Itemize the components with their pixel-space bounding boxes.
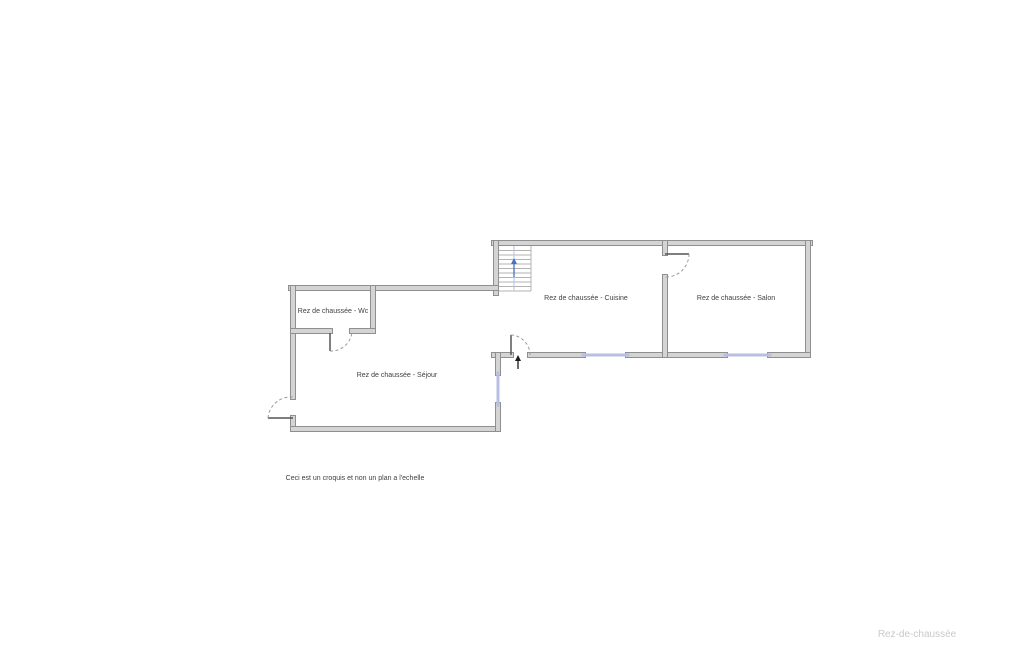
room-label-cuisine: Rez de chaussée - Cuisine	[544, 295, 628, 302]
wc-door-swing-arc	[330, 332, 352, 351]
doors-group	[268, 254, 689, 418]
stair-direction-arrow-head	[511, 258, 517, 264]
walls-group	[289, 241, 813, 432]
floor-plan: Rez de chaussée - Wc Rez de chaussée - S…	[0, 0, 1025, 650]
wall-segment	[528, 353, 586, 358]
wall-segment	[291, 286, 296, 400]
wall-segment	[371, 286, 376, 334]
wall-segment	[492, 353, 514, 358]
room-label-wc: Rez de chaussée - Wc	[298, 308, 369, 315]
wall-segment	[291, 427, 501, 432]
room-label-sejour: Rez de chaussée - Séjour	[357, 372, 438, 379]
window	[582, 354, 630, 357]
entrance-arrow-head	[515, 355, 521, 361]
window	[724, 354, 772, 357]
floor-watermark: Rez-de-chaussée	[878, 629, 957, 640]
room-label-salon: Rez de chaussée - Salon	[697, 295, 775, 302]
sketch-disclaimer-note: Ceci est un croquis et non un plan a l'e…	[286, 475, 425, 482]
wall-segment	[626, 353, 728, 358]
sejour-entry-door-swing-arc	[268, 397, 293, 418]
wall-segment	[496, 403, 501, 432]
wall-segment	[350, 329, 376, 334]
wall-segment	[806, 241, 811, 358]
windows-group	[497, 354, 772, 407]
wall-segment	[663, 275, 668, 358]
wall-segment	[768, 353, 811, 358]
wall-segment	[291, 329, 333, 334]
wall-segment	[492, 241, 813, 246]
cuisine-salon-door-swing-arc	[665, 254, 689, 277]
wall-segment	[289, 286, 499, 291]
window	[497, 372, 500, 407]
